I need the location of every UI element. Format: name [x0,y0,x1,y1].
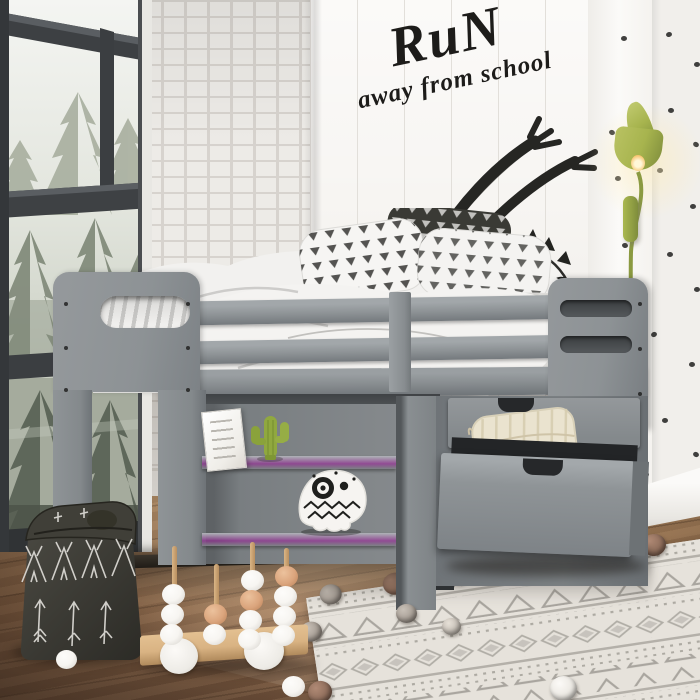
drawer-side [629,461,649,556]
toy-ball [273,606,296,627]
floor-pompom [442,618,461,635]
center-divider-post [396,396,436,610]
framed-card [201,408,247,472]
toy-ball [239,610,262,631]
toy-ball [162,584,185,605]
toy-ball [275,566,298,587]
footboard-slot [560,300,632,317]
loose-ball [282,676,305,697]
floor-pompom [396,604,417,623]
footboard-slot [560,336,632,353]
kids-room-photo: RuN away from school [0,0,700,700]
drawer-handle-notch [498,398,534,412]
drawer-open [431,431,652,570]
toy-ball [203,624,226,645]
toy-ball [274,586,297,607]
toy-ball [204,604,227,625]
toy-ball [161,604,184,625]
guard-rail-post [389,292,411,392]
toy-ball [238,629,261,650]
floor-pompom [550,676,577,700]
polka-dot-wall [652,0,700,505]
drawer-handle-notch [522,458,563,476]
lamp-bulb-icon [631,155,645,171]
plush-toy [292,466,370,536]
lamp-wall-mount [623,196,638,242]
toy-ball [240,590,263,611]
loose-ball [56,650,77,669]
cactus-figurine [250,412,290,462]
toy-ball [160,624,183,645]
headboard-slot [100,296,190,328]
toy-ball [272,625,295,646]
toy-ball [241,570,264,591]
wooden-stacking-toy [128,538,324,678]
headboard [53,272,200,392]
